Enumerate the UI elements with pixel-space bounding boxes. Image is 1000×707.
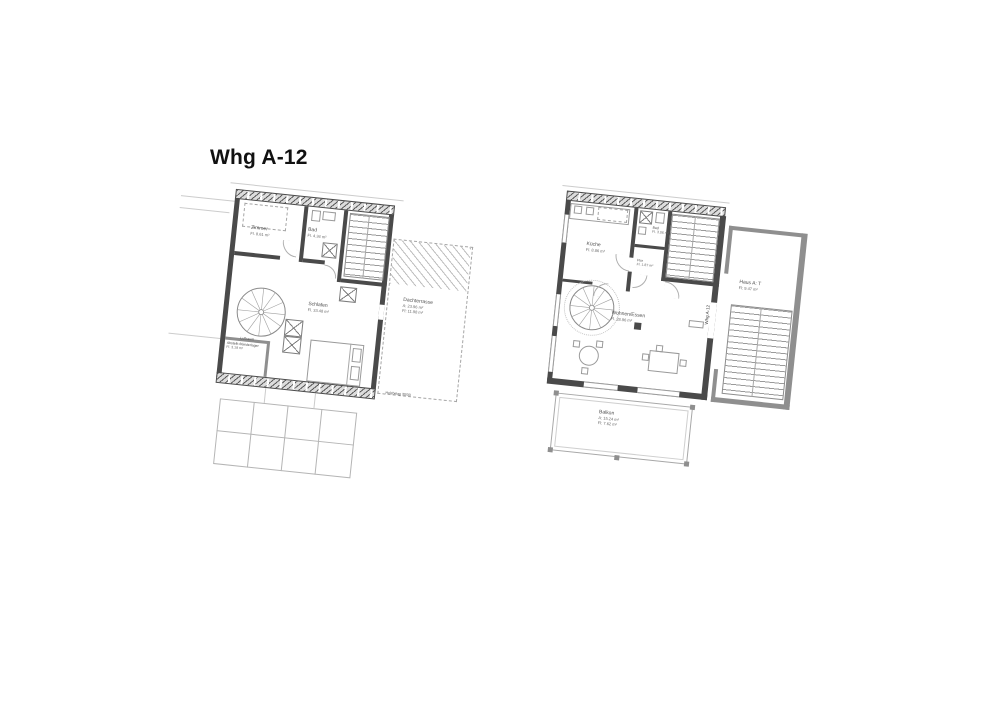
upper-floor-plan: Zimmer Fl. 8.61 m² Bad Fl. 4.34 m² Schla… bbox=[197, 188, 507, 516]
wc-fixture bbox=[655, 212, 665, 224]
pillow bbox=[352, 348, 362, 363]
reference-line bbox=[181, 195, 235, 202]
room-area: Fl. 33.48 m² bbox=[307, 307, 329, 314]
room-area: Fl. 8.61 m² bbox=[250, 231, 270, 238]
pillow bbox=[350, 366, 360, 381]
door-swing bbox=[614, 254, 631, 271]
chair bbox=[656, 345, 664, 353]
balcony-door bbox=[583, 381, 617, 391]
sink-fixture bbox=[322, 211, 336, 221]
balkon-post bbox=[614, 455, 619, 460]
room-label-bad: Bad Fl. 4.34 m² bbox=[307, 227, 327, 240]
reference-line bbox=[180, 207, 230, 213]
room-label-balkon: Balkon A: 15.24 m² Fl: 7.62 m² bbox=[598, 409, 620, 427]
room-area: Fl: 9.47 m² bbox=[738, 285, 760, 292]
shower-fixture bbox=[321, 242, 337, 258]
chair bbox=[642, 353, 650, 361]
chair bbox=[679, 359, 687, 367]
balcony-window bbox=[637, 387, 679, 397]
room-area: Fl. 3.06 m² bbox=[652, 230, 669, 236]
window bbox=[553, 294, 561, 326]
sink-fixture bbox=[574, 205, 583, 214]
room-area: Fl. 1.87 m² bbox=[636, 263, 653, 269]
wc-fixture bbox=[311, 210, 321, 222]
terrace-door-opening bbox=[378, 304, 385, 319]
door-swing bbox=[323, 265, 337, 279]
balkon-post bbox=[554, 390, 559, 395]
wall-bad-bottom bbox=[303, 258, 325, 264]
closet-box bbox=[282, 336, 302, 355]
door-swing bbox=[281, 240, 298, 257]
sink-fixture bbox=[638, 226, 647, 235]
chair bbox=[581, 367, 589, 375]
shower-fixture bbox=[639, 210, 653, 224]
wall-abstell-right bbox=[263, 341, 270, 377]
balkon-post bbox=[548, 447, 553, 452]
annex-wall-left-upper bbox=[724, 226, 733, 274]
room-label-schlafen: Schlafen Fl. 33.48 m² bbox=[307, 301, 329, 314]
duct-shaft bbox=[339, 286, 357, 303]
room-label-haus: Haus A: T Fl: 9.47 m² bbox=[738, 279, 761, 292]
room-label-kueche: Küche Fl. 8.86 m² bbox=[586, 241, 606, 254]
door-swing bbox=[632, 274, 647, 289]
room-area: Fl. 8.86 m² bbox=[586, 247, 606, 254]
room-label-flur: Flur Fl. 1.87 m² bbox=[636, 258, 654, 268]
round-table bbox=[578, 345, 600, 367]
entry-floor-plan: Küche Fl. 8.86 m² Bad Fl. 3.06 m² Flur F… bbox=[532, 190, 825, 501]
room-label-bad: Bad Fl. 3.06 m² bbox=[652, 226, 670, 236]
dining-table bbox=[648, 350, 680, 374]
door-swing bbox=[663, 281, 681, 299]
page-title: Whg A-12 bbox=[210, 146, 308, 170]
stove-fixture bbox=[586, 207, 595, 216]
spiral-staircase bbox=[234, 285, 289, 340]
wall-zimmer-bottom bbox=[234, 251, 280, 260]
room-label-zimmer: Zimmer Fl. 8.61 m² bbox=[250, 225, 270, 238]
balkon-post bbox=[690, 405, 695, 410]
room-label-dachterrasse: Dachterrasse A: 23.96 m² Fl: 11.98 m² bbox=[402, 297, 433, 316]
room-area: Fl. 4.34 m² bbox=[307, 233, 327, 240]
wall-kueche-right-lower bbox=[626, 271, 632, 291]
window bbox=[548, 336, 557, 372]
roof-hatch bbox=[390, 240, 471, 292]
chair bbox=[596, 340, 604, 348]
floor-plan-sheet: Whg A-12 bbox=[0, 0, 1000, 707]
connector-line bbox=[313, 393, 316, 408]
sideboard bbox=[688, 320, 704, 329]
connector-line bbox=[264, 388, 267, 403]
wall-bad-bottom bbox=[634, 244, 664, 250]
closet-box bbox=[284, 319, 304, 338]
chair bbox=[573, 340, 581, 348]
reference-line bbox=[168, 333, 220, 339]
balkon-post bbox=[684, 461, 689, 466]
annex-wall-top bbox=[729, 226, 805, 238]
spiral-staircase bbox=[567, 282, 618, 333]
